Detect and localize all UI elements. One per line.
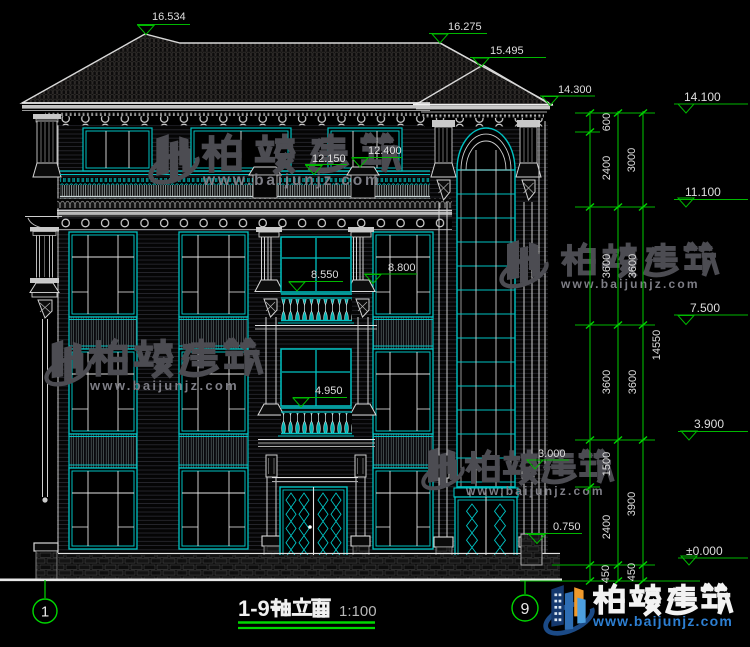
svg-text:2400: 2400 [601,515,613,539]
svg-text:www.baijunjz.com: www.baijunjz.com [592,613,733,629]
svg-text:www.baijunjz.com: www.baijunjz.com [202,172,382,189]
svg-text:16.534: 16.534 [152,11,186,23]
svg-text:16.275: 16.275 [448,21,482,33]
svg-text:15.495: 15.495 [490,45,524,57]
svg-text:2400: 2400 [601,156,613,180]
svg-text:3900: 3900 [626,492,638,516]
svg-text:3600: 3600 [627,370,639,394]
svg-text:1500: 1500 [601,452,613,476]
svg-text:1:100: 1:100 [339,603,377,620]
svg-text:3600: 3600 [627,254,639,278]
svg-text:3600: 3600 [601,370,613,394]
svg-text:12.400: 12.400 [368,145,402,157]
svg-text:8.550: 8.550 [311,269,339,281]
svg-text:3000: 3000 [626,148,638,172]
svg-text:12.150: 12.150 [312,153,346,165]
svg-text:1-9: 1-9 [238,596,270,621]
svg-text:3600: 3600 [601,254,613,278]
svg-text:14.100: 14.100 [684,90,721,104]
svg-text:14.300: 14.300 [558,84,592,96]
svg-text:14550: 14550 [651,330,663,361]
svg-text:7.500: 7.500 [690,301,720,315]
svg-text:4.950: 4.950 [315,385,343,397]
svg-text:11.100: 11.100 [685,185,721,199]
svg-text:450: 450 [600,565,612,583]
svg-text:0.750: 0.750 [553,521,581,533]
svg-text:450: 450 [626,563,638,581]
svg-text:600: 600 [601,113,613,131]
svg-text:1: 1 [41,604,49,621]
svg-text:8.800: 8.800 [388,262,416,274]
svg-text:www.baijunjz.com: www.baijunjz.com [89,378,239,393]
svg-text:www.baijunjz.com: www.baijunjz.com [465,484,605,498]
svg-text:3.000: 3.000 [538,448,566,460]
svg-text:9: 9 [521,601,530,618]
svg-text:3.900: 3.900 [694,417,724,431]
